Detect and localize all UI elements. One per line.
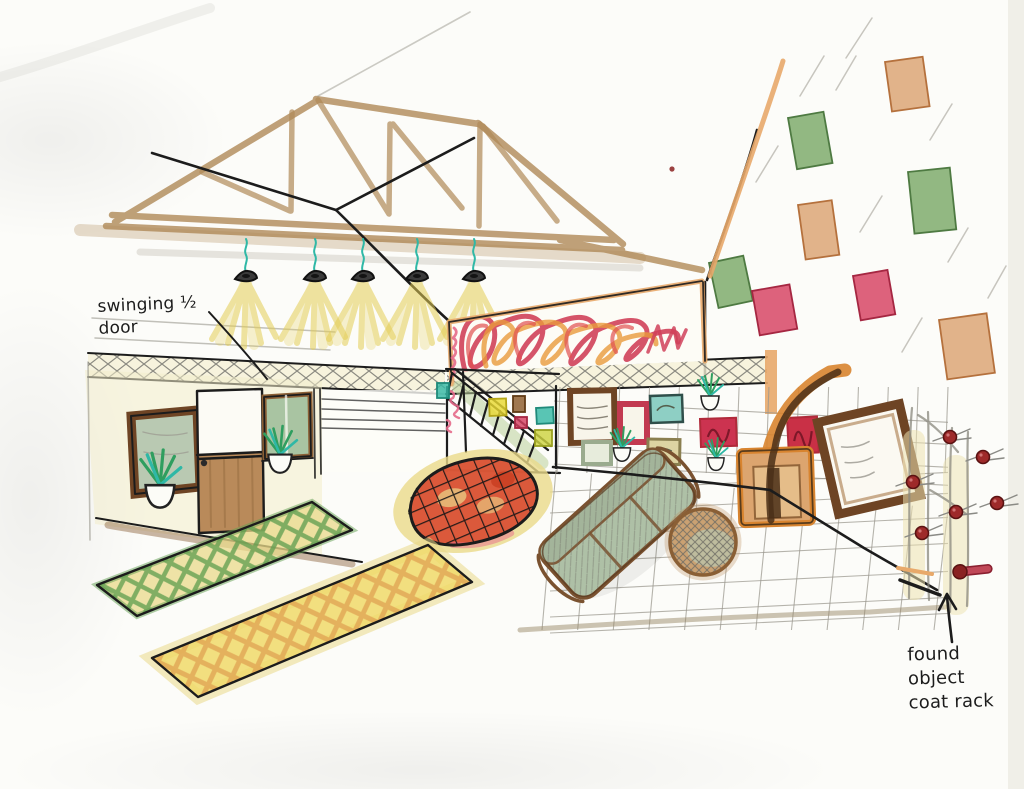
wall-art-square [908,168,956,234]
gallery-frame [650,395,683,423]
wall-art-square [939,313,995,379]
annotation-coat-rack-line3: coat rack [908,689,1021,716]
wall-art-square [885,57,930,112]
wall-art-square [752,284,797,335]
door-handle [201,460,207,466]
gallery-frame [620,404,647,442]
half-door [197,389,264,533]
sketch-canvas [0,0,1024,789]
gallery-frame [583,442,611,464]
annotation-coat-rack-line1: found [907,641,1020,668]
stair-art-square [535,430,552,446]
stair-art-square [489,398,507,416]
round-pouf [667,506,739,578]
stair-art-square [437,383,449,398]
annotation-coat-rack-line2: object [908,665,1021,692]
wall-art-square [798,200,839,259]
sketch-page: swinging ½ door found object coat rack [0,0,1024,789]
shiplap-wall [322,390,445,472]
stair-art-square [513,396,525,412]
stair-art-square [536,407,554,424]
annotation-swinging-door: swinging ½ door [97,290,229,340]
stair-art-square [515,417,527,428]
annotation-coat-rack: found object coat rack [907,641,1021,716]
door-lower-half [199,452,264,533]
band-end-post [765,350,777,414]
window [262,394,313,461]
wall-art-square [788,112,832,169]
wall-art-square [853,270,895,320]
gallery-frame [570,390,615,443]
ink-dot [669,166,674,171]
